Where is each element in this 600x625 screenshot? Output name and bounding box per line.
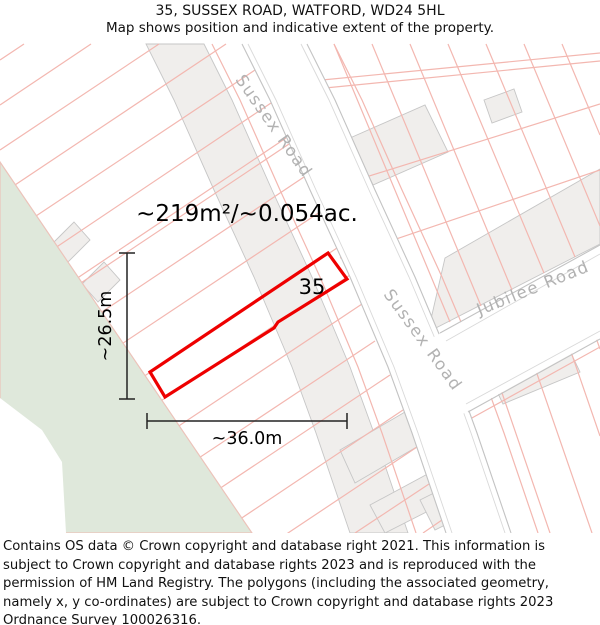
width-dimension-label: ~36.0m (212, 429, 283, 449)
page: 35, SUSSEX ROAD, WATFORD, WD24 5HL Map s… (0, 0, 600, 625)
height-dimension-label: ~26.5m (96, 291, 116, 362)
property-map: Sussex Road Sussex Road Jubilee Road ~21… (0, 0, 600, 625)
plot-number-label: 35 (299, 275, 326, 299)
area-label: ~219m²/~0.054ac. (136, 201, 358, 227)
attribution-text: Contains OS data © Crown copyright and d… (3, 538, 597, 625)
